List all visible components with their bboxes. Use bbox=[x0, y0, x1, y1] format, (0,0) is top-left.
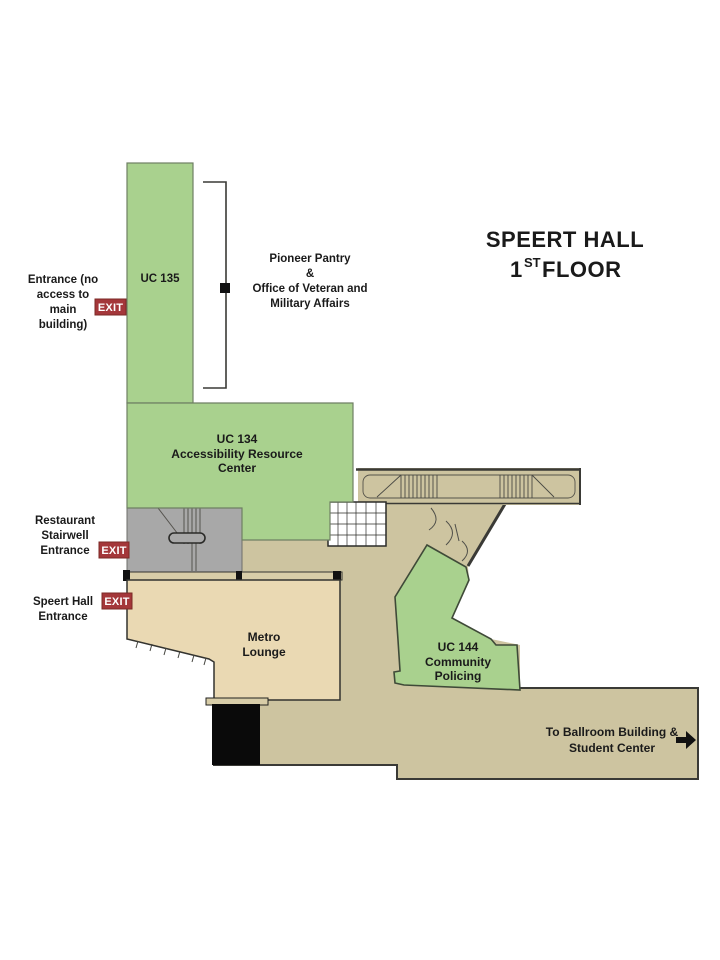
wall-cap-mid bbox=[236, 571, 242, 580]
svg-text:Military Affairs: Military Affairs bbox=[270, 298, 349, 310]
label-speert-entrance: Speert Hall Entrance bbox=[33, 596, 93, 623]
label-entrance-no-access: Entrance (no access to main building) bbox=[28, 274, 98, 331]
title-floor-num: 1 bbox=[510, 257, 523, 282]
svg-text:UC 144: UC 144 bbox=[438, 640, 479, 654]
svg-text:Center: Center bbox=[218, 461, 256, 475]
metro-lounge bbox=[127, 580, 340, 700]
bracket-marker bbox=[220, 283, 230, 293]
wall-band bbox=[125, 572, 342, 580]
exit-badge-restaurant: EXIT bbox=[99, 542, 129, 558]
svg-text:Restaurant: Restaurant bbox=[35, 515, 95, 527]
svg-text:&: & bbox=[306, 268, 314, 280]
floor-plan-map: EXIT EXIT EXIT SPEERT HALL 1 ST FLOOR UC… bbox=[0, 0, 720, 960]
metro-lounge-area bbox=[127, 580, 340, 700]
svg-text:Entrance: Entrance bbox=[40, 545, 89, 557]
svg-text:To Ballroom Building &: To Ballroom Building & bbox=[546, 725, 679, 739]
svg-text:Metro: Metro bbox=[248, 630, 281, 644]
svg-text:building): building) bbox=[39, 319, 88, 331]
exit-badge-speert: EXIT bbox=[102, 593, 132, 609]
svg-text:main: main bbox=[50, 304, 77, 316]
pantry-bracket bbox=[203, 182, 230, 388]
stair-handrail bbox=[169, 533, 205, 543]
svg-text:UC 134: UC 134 bbox=[217, 432, 258, 446]
svg-text:Lounge: Lounge bbox=[242, 645, 286, 659]
svg-text:Policing: Policing bbox=[435, 669, 482, 683]
restaurant-stairwell bbox=[127, 508, 242, 572]
upper-stair-corridor bbox=[356, 468, 581, 505]
svg-text:Speert Hall: Speert Hall bbox=[33, 596, 93, 608]
page-title: SPEERT HALL 1 ST FLOOR bbox=[486, 227, 644, 282]
svg-text:Pioneer Pantry: Pioneer Pantry bbox=[269, 253, 351, 265]
label-uc135: UC 135 bbox=[141, 273, 181, 285]
label-metro-lounge: Metro Lounge bbox=[242, 630, 286, 659]
label-restaurant-stairwell: Restaurant Stairwell Entrance bbox=[35, 515, 95, 557]
exit-text: EXIT bbox=[101, 545, 126, 557]
svg-text:Entrance: Entrance bbox=[38, 611, 87, 623]
title-floor-rest: FLOOR bbox=[542, 257, 622, 282]
floor-plan-page: EXIT EXIT EXIT SPEERT HALL 1 ST FLOOR UC… bbox=[0, 0, 720, 960]
dark-opening bbox=[212, 704, 260, 765]
svg-text:Office of Veteran and: Office of Veteran and bbox=[252, 283, 367, 295]
exit-text: EXIT bbox=[104, 596, 129, 608]
label-pioneer-pantry: Pioneer Pantry & Office of Veteran and M… bbox=[252, 253, 367, 310]
exit-text: EXIT bbox=[98, 302, 123, 314]
tiled-vestibule bbox=[328, 502, 386, 546]
exit-badge-entrance: EXIT bbox=[95, 299, 126, 315]
svg-text:Stairwell: Stairwell bbox=[41, 530, 88, 542]
svg-text:Accessibility Resource: Accessibility Resource bbox=[171, 447, 303, 461]
wall-cap-right bbox=[333, 571, 341, 580]
title-floor-sup: ST bbox=[524, 255, 541, 270]
svg-text:Community: Community bbox=[425, 655, 491, 669]
svg-text:Student Center: Student Center bbox=[569, 741, 655, 755]
title-line1: SPEERT HALL bbox=[486, 227, 644, 252]
svg-text:access to: access to bbox=[37, 289, 89, 301]
stair-band bbox=[358, 468, 581, 505]
svg-text:Entrance (no: Entrance (no bbox=[28, 274, 98, 286]
lower-wall-bar bbox=[206, 698, 268, 705]
